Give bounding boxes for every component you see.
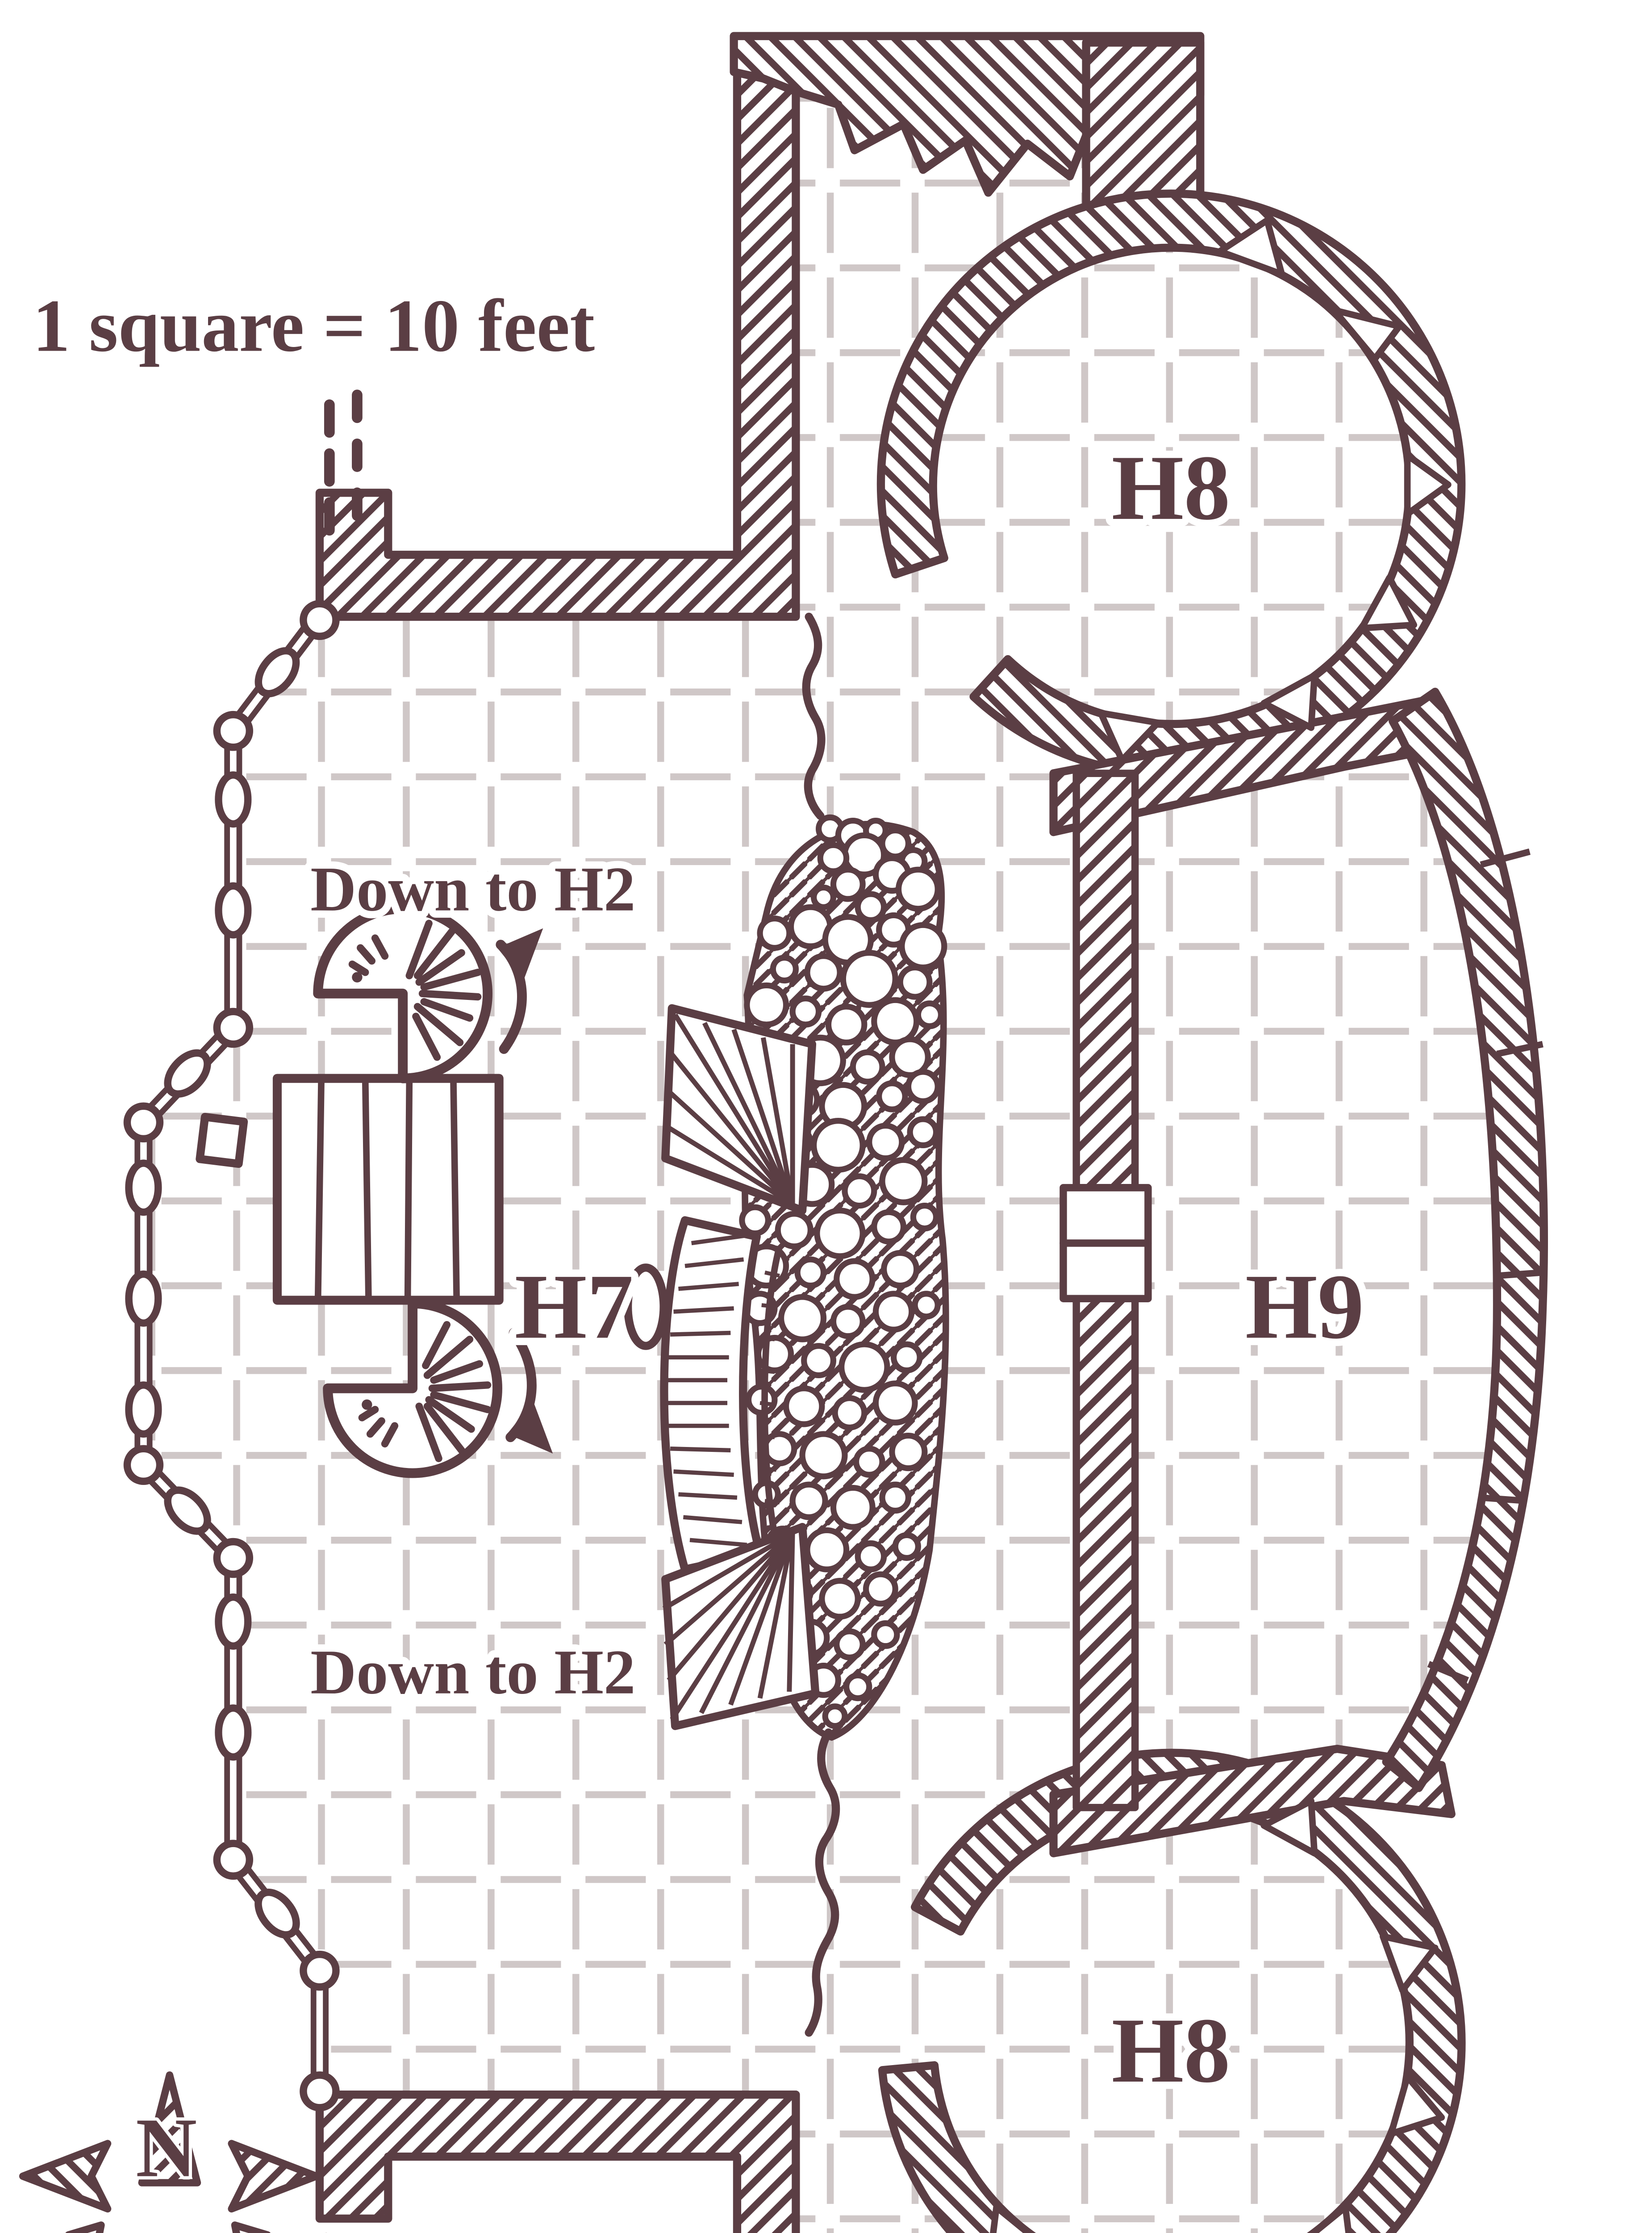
compass-north-label: N <box>136 2101 197 2195</box>
stair-label-north: Down to H2 <box>310 853 635 924</box>
wall-corridor-right-top <box>1086 42 1201 215</box>
room-label-h7: H7 <box>515 1255 634 1358</box>
room-label-h9: H9 <box>1245 1255 1364 1358</box>
door-h7-west <box>200 1117 244 1164</box>
table <box>277 1079 499 1300</box>
scale-note-label: 1 square = 10 feet <box>33 284 595 368</box>
room-label-h8-bottom: H8 <box>1111 1999 1230 2102</box>
wall-h9-west-lower <box>1076 1299 1135 1808</box>
wall-h9-west-upper <box>1076 774 1135 1188</box>
dungeon-map: 1 square = 10 feet H8 H9 H7 H8 Down to H… <box>0 0 1652 2233</box>
stair-label-south: Down to H2 <box>310 1637 635 1707</box>
door-h9 <box>1063 1188 1148 1298</box>
room-label-h8-top: H8 <box>1111 436 1230 539</box>
